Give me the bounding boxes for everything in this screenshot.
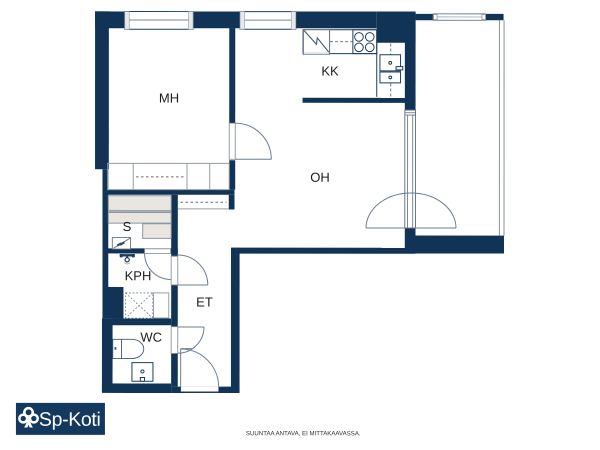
svg-text:OH: OH (310, 170, 330, 185)
svg-text:Sp-Koti: Sp-Koti (39, 409, 101, 431)
svg-text:KK: KK (321, 64, 339, 79)
svg-text:SUUNTAA ANTAVA, EI MITTAKAAVAS: SUUNTAA ANTAVA, EI MITTAKAAVASSA. (246, 430, 361, 437)
svg-text:ET: ET (196, 294, 213, 309)
svg-text:WC: WC (140, 330, 162, 345)
svg-text:KPH: KPH (125, 268, 152, 283)
svg-text:S: S (123, 219, 132, 234)
svg-text:MH: MH (159, 90, 179, 105)
